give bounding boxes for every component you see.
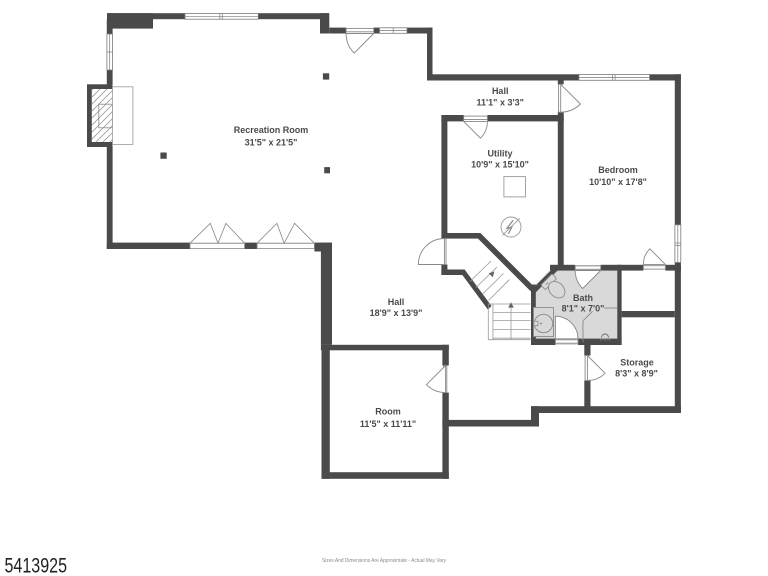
svg-text:Hall: Hall	[388, 297, 405, 307]
svg-text:8'3" x 8'9": 8'3" x 8'9"	[615, 368, 658, 378]
svg-text:10'10" x 17'8": 10'10" x 17'8"	[589, 177, 647, 187]
svg-text:Utility: Utility	[487, 148, 512, 158]
svg-text:Bath: Bath	[573, 293, 593, 303]
svg-text:Recreation Room: Recreation Room	[234, 125, 309, 135]
svg-text:10'9" x 15'10": 10'9" x 15'10"	[471, 159, 529, 169]
svg-text:Storage: Storage	[620, 357, 654, 367]
svg-text:8'1" x 7'0": 8'1" x 7'0"	[562, 303, 605, 313]
svg-text:31'5" x 21'5": 31'5" x 21'5"	[245, 137, 298, 147]
svg-text:11'5" x 11'11": 11'5" x 11'11"	[360, 419, 416, 429]
svg-text:Bedroom: Bedroom	[598, 165, 638, 175]
svg-text:Sizes And Dimensions Are Appro: Sizes And Dimensions Are Approximate - A…	[322, 558, 446, 564]
svg-text:18'9" x 13'9": 18'9" x 13'9"	[370, 308, 423, 318]
svg-text:Room: Room	[375, 407, 401, 417]
svg-text:11'1" x 3'3": 11'1" x 3'3"	[477, 97, 524, 107]
svg-text:5413925: 5413925	[5, 554, 68, 576]
svg-text:Hall: Hall	[492, 86, 509, 96]
